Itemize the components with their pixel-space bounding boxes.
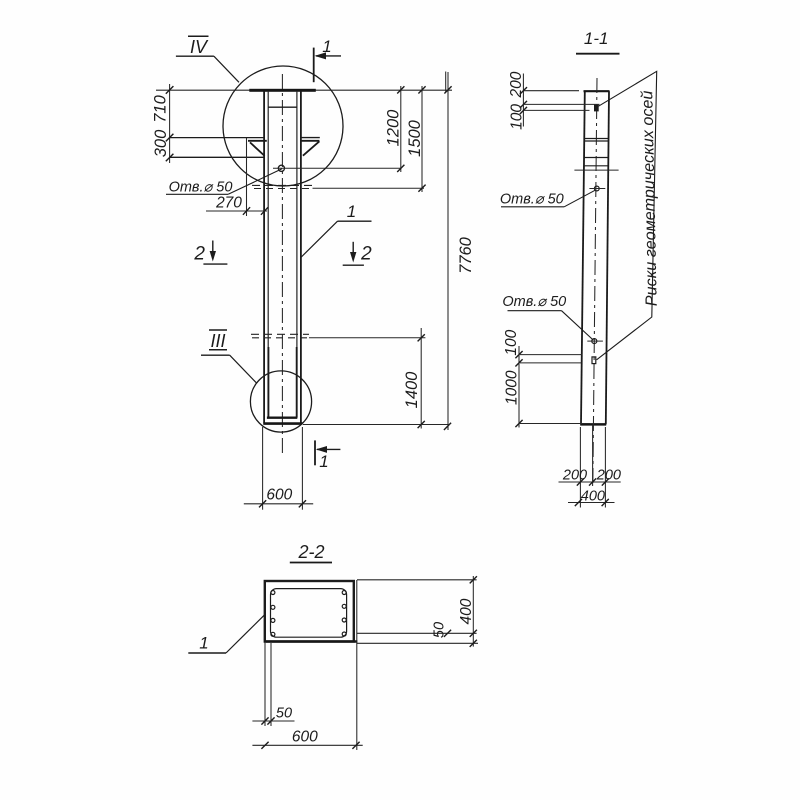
svg-text:Отв.⌀ 50: Отв.⌀ 50 <box>500 192 564 208</box>
svg-text:1: 1 <box>347 202 356 221</box>
svg-text:1: 1 <box>319 452 328 471</box>
svg-text:400: 400 <box>581 488 605 504</box>
svg-text:2: 2 <box>193 244 205 265</box>
svg-text:1: 1 <box>199 634 208 653</box>
svg-text:100: 100 <box>503 329 520 355</box>
svg-text:1000: 1000 <box>504 370 521 405</box>
svg-text:300: 300 <box>152 129 170 157</box>
svg-text:IV: IV <box>190 37 209 57</box>
svg-text:2-2: 2-2 <box>297 542 324 562</box>
svg-text:1500: 1500 <box>406 119 424 157</box>
svg-text:600: 600 <box>266 487 292 504</box>
svg-text:Отв.⌀ 50: Отв.⌀ 50 <box>169 180 233 196</box>
svg-text:200: 200 <box>508 71 525 98</box>
svg-text:600: 600 <box>292 728 318 745</box>
svg-text:2: 2 <box>360 244 372 265</box>
svg-text:270: 270 <box>215 195 242 212</box>
svg-text:100: 100 <box>509 104 526 130</box>
svg-text:1400: 1400 <box>403 371 421 409</box>
svg-text:III: III <box>210 331 225 351</box>
svg-text:1-1: 1-1 <box>584 29 609 48</box>
svg-text:710: 710 <box>152 94 170 122</box>
svg-text:400: 400 <box>458 598 475 624</box>
svg-text:200: 200 <box>596 468 621 484</box>
svg-text:Отв.⌀ 50: Отв.⌀ 50 <box>502 294 566 310</box>
svg-text:200: 200 <box>562 468 587 484</box>
svg-text:1200: 1200 <box>385 109 403 147</box>
svg-text:1: 1 <box>322 37 331 56</box>
svg-text:50: 50 <box>276 706 292 722</box>
svg-text:7760: 7760 <box>457 236 475 274</box>
svg-text:50: 50 <box>432 622 448 638</box>
